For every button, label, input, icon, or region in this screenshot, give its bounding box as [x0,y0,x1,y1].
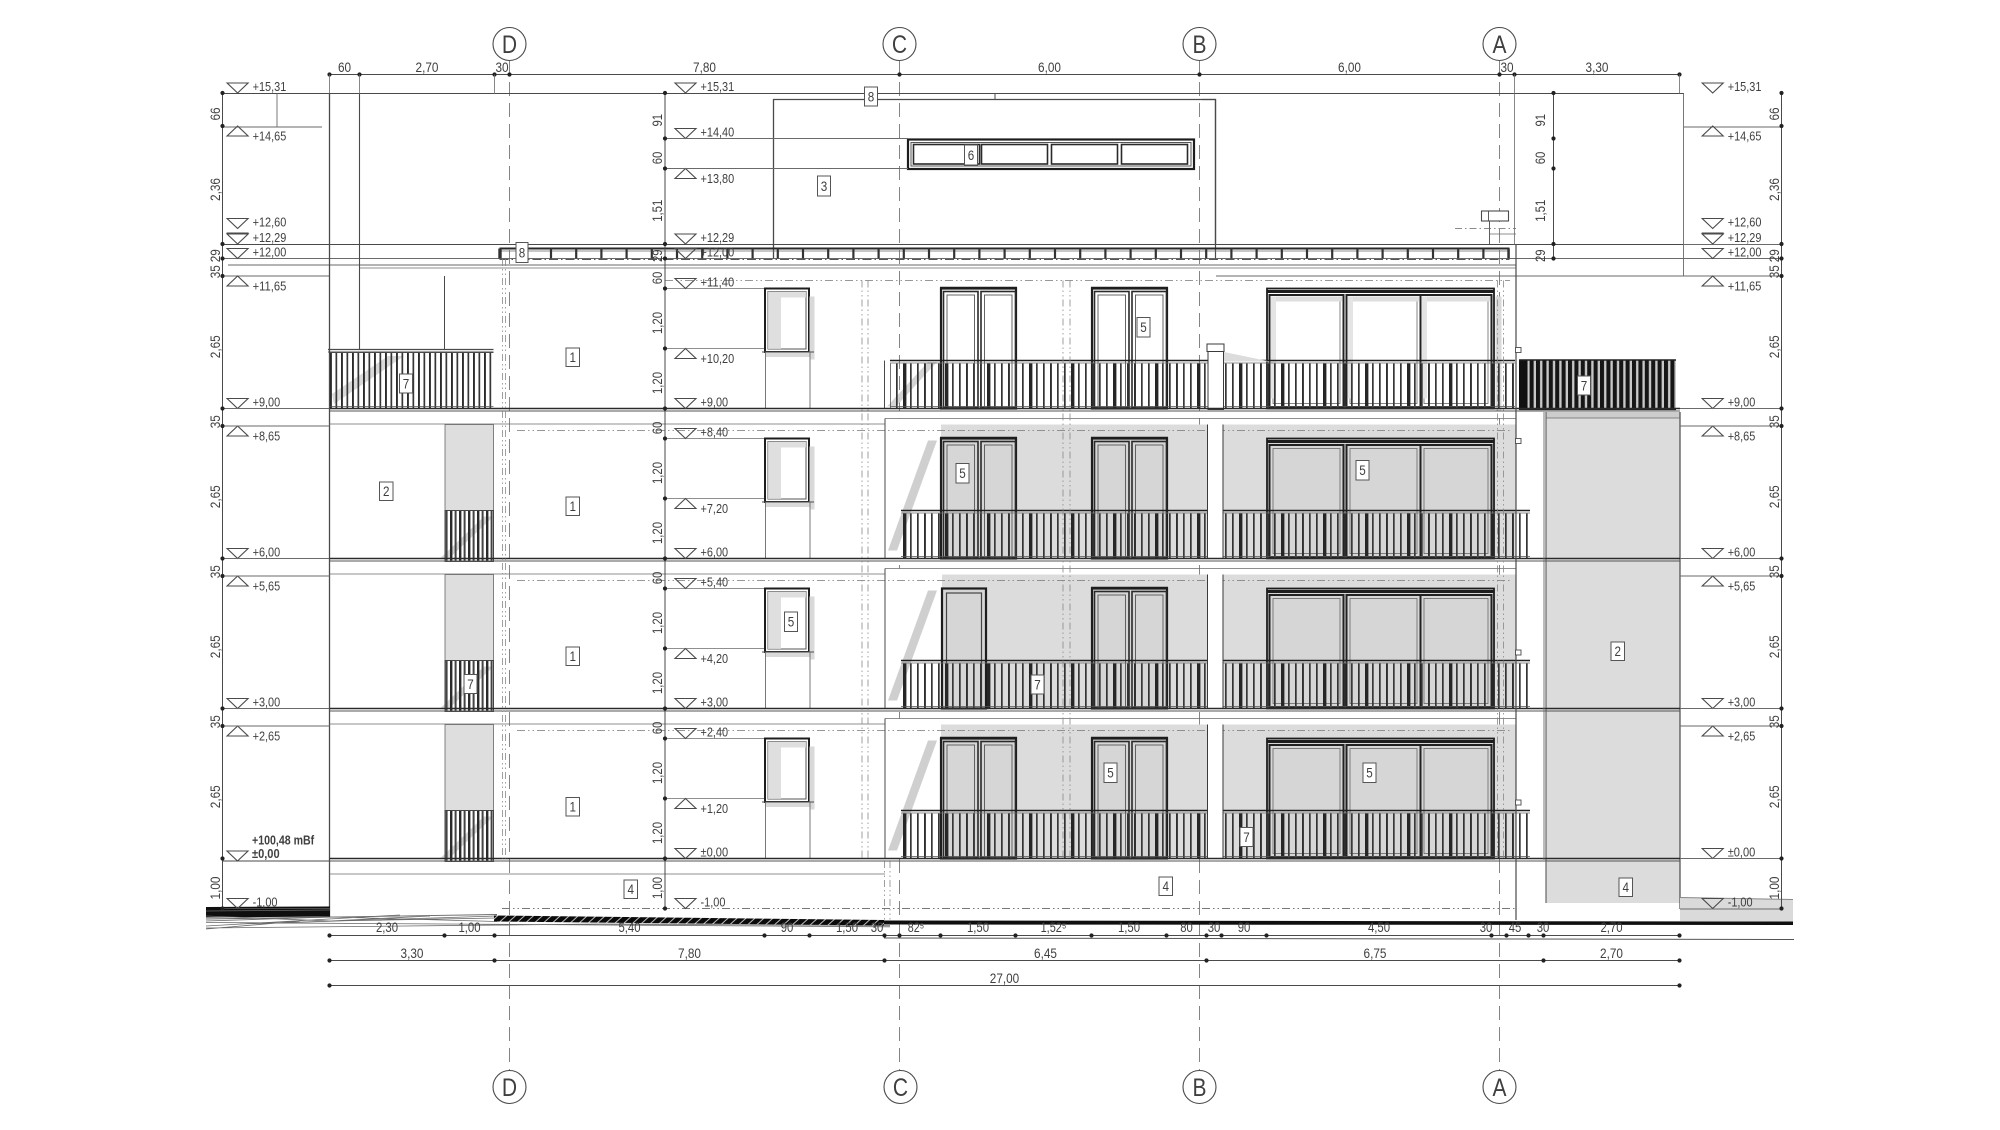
svg-text:3,30: 3,30 [1586,59,1609,75]
svg-text:30: 30 [1537,920,1550,935]
svg-text:2,36: 2,36 [207,178,223,201]
svg-text:5: 5 [1359,462,1366,478]
svg-text:2,65: 2,65 [207,335,223,358]
svg-text:+4,20: +4,20 [701,651,729,666]
svg-text:+7,20: +7,20 [701,501,729,516]
svg-text:60: 60 [650,272,665,285]
svg-text:1,20: 1,20 [650,372,665,394]
svg-text:29: 29 [650,249,665,262]
svg-text:5: 5 [1107,765,1114,781]
svg-text:3: 3 [821,178,828,194]
svg-text:1,50: 1,50 [967,920,989,935]
svg-text:1: 1 [570,648,577,664]
svg-text:7: 7 [467,676,474,692]
svg-text:6,00: 6,00 [1338,59,1361,75]
svg-text:+15,31: +15,31 [701,79,735,94]
svg-text:+1,20: +1,20 [701,801,729,816]
svg-text:5: 5 [788,614,795,630]
svg-text:+14,40: +14,40 [701,125,735,140]
svg-text:1,20: 1,20 [650,822,665,844]
svg-text:±0,00: ±0,00 [1728,845,1756,860]
svg-text:4: 4 [628,881,635,897]
svg-text:1,00: 1,00 [458,920,480,935]
svg-text:+11,65: +11,65 [253,279,287,294]
svg-text:60: 60 [338,59,351,75]
svg-text:+5,40: +5,40 [701,575,729,590]
svg-text:1,50: 1,50 [836,920,858,935]
svg-text:1,00: 1,00 [207,876,223,899]
svg-text:1,20: 1,20 [650,522,665,544]
svg-text:35: 35 [1766,565,1782,578]
svg-text:45: 45 [1509,920,1522,935]
svg-text:+11,40: +11,40 [701,275,735,290]
svg-text:+8,40: +8,40 [701,425,729,440]
svg-text:3,30: 3,30 [401,945,424,961]
svg-text:2: 2 [383,483,390,499]
svg-text:1,52⁵: 1,52⁵ [1041,920,1067,935]
svg-text:B: B [1193,31,1207,59]
svg-text:6,75: 6,75 [1364,945,1387,961]
svg-text:+3,00: +3,00 [701,695,729,710]
svg-text:2,36: 2,36 [1766,178,1782,201]
svg-text:7: 7 [1243,829,1250,845]
svg-text:8: 8 [519,244,526,260]
svg-text:+12,00: +12,00 [701,245,735,260]
svg-text:A: A [1493,1074,1507,1102]
svg-text:+6,00: +6,00 [253,545,281,560]
svg-text:35: 35 [207,715,223,728]
svg-text:35: 35 [207,265,223,278]
svg-text:30: 30 [1480,920,1493,935]
svg-text:+10,20: +10,20 [701,351,735,366]
svg-text:2,70: 2,70 [1600,920,1622,935]
svg-text:+12,60: +12,60 [1728,215,1762,230]
svg-text:35: 35 [207,565,223,578]
svg-text:1,51: 1,51 [1533,200,1548,222]
svg-text:7: 7 [1581,377,1588,393]
svg-text:4: 4 [1163,878,1170,894]
svg-text:35: 35 [1766,415,1782,428]
svg-text:1: 1 [570,498,577,514]
svg-text:A: A [1493,31,1507,59]
svg-text:D: D [502,31,517,59]
svg-text:5: 5 [1366,765,1373,781]
svg-text:+9,00: +9,00 [701,395,729,410]
svg-text:7: 7 [1034,676,1041,692]
svg-text:80: 80 [1180,920,1193,935]
svg-text:4,50: 4,50 [1368,920,1390,935]
svg-text:+6,00: +6,00 [701,545,729,560]
svg-text:35: 35 [1766,715,1782,728]
svg-text:6,00: 6,00 [1038,59,1061,75]
svg-text:C: C [892,31,907,59]
svg-text:1,51: 1,51 [650,200,665,222]
svg-text:2,65: 2,65 [207,635,223,658]
svg-text:6: 6 [968,147,975,163]
svg-text:+12,00: +12,00 [253,245,287,260]
svg-text:1,20: 1,20 [650,612,665,634]
svg-text:7,80: 7,80 [678,945,701,961]
svg-text:60: 60 [650,572,665,585]
svg-text:30: 30 [871,920,884,935]
svg-text:2,70: 2,70 [1600,945,1623,961]
svg-text:7: 7 [403,375,410,391]
svg-text:+12,29: +12,29 [701,230,735,245]
svg-text:1,00: 1,00 [1766,876,1782,899]
svg-text:+9,00: +9,00 [1728,395,1756,410]
svg-text:+5,65: +5,65 [1728,579,1756,594]
svg-text:2: 2 [1615,643,1622,659]
svg-text:90: 90 [781,920,794,935]
svg-text:-1,00: -1,00 [1728,895,1753,910]
svg-text:+12,60: +12,60 [253,215,287,230]
svg-text:91: 91 [1533,114,1548,127]
svg-text:30: 30 [1208,920,1221,935]
svg-text:60: 60 [650,722,665,735]
svg-text:+2,65: +2,65 [253,729,281,744]
svg-text:29: 29 [1533,249,1548,262]
svg-text:5: 5 [1140,319,1147,335]
svg-text:2,65: 2,65 [207,485,223,508]
svg-text:+9,00: +9,00 [253,395,281,410]
svg-text:1,20: 1,20 [650,312,665,334]
svg-text:+3,00: +3,00 [253,695,281,710]
svg-text:1,20: 1,20 [650,762,665,784]
svg-text:2,30: 2,30 [376,920,398,935]
svg-text:1: 1 [570,799,577,815]
svg-text:2,65: 2,65 [1766,635,1782,658]
svg-text:+8,65: +8,65 [1728,429,1756,444]
svg-text:C: C [893,1074,908,1102]
svg-text:27,00: 27,00 [990,970,1020,986]
svg-text:5: 5 [959,465,966,481]
svg-text:+2,65: +2,65 [1728,729,1756,744]
svg-text:82⁵: 82⁵ [908,920,924,935]
svg-text:+12,29: +12,29 [1728,230,1762,245]
svg-text:29: 29 [1766,249,1782,262]
svg-text:2,65: 2,65 [1766,785,1782,808]
svg-text:+8,65: +8,65 [253,429,281,444]
svg-text:1,20: 1,20 [650,672,665,694]
svg-text:6,45: 6,45 [1034,945,1057,961]
svg-text:+15,31: +15,31 [253,79,287,94]
svg-text:1,50: 1,50 [1118,920,1140,935]
svg-text:35: 35 [1766,265,1782,278]
svg-text:+14,65: +14,65 [1728,129,1762,144]
svg-text:+15,31: +15,31 [1728,79,1762,94]
svg-text:4: 4 [1623,879,1630,895]
svg-text:91: 91 [650,114,665,127]
svg-text:-1,00: -1,00 [701,895,726,910]
svg-text:1,20: 1,20 [650,462,665,484]
svg-text:30: 30 [1500,59,1513,75]
svg-text:2,65: 2,65 [207,785,223,808]
svg-text:+3,00: +3,00 [1728,695,1756,710]
svg-text:±0,00: ±0,00 [701,845,729,860]
svg-text:±0,00: ±0,00 [252,846,280,861]
svg-text:30: 30 [495,59,508,75]
svg-text:+5,65: +5,65 [253,579,281,594]
svg-text:8: 8 [868,88,875,104]
svg-text:-1,00: -1,00 [253,895,278,910]
svg-text:60: 60 [1533,152,1548,165]
svg-text:90: 90 [1238,920,1251,935]
svg-text:60: 60 [650,152,665,165]
svg-text:B: B [1193,1074,1207,1102]
svg-text:29: 29 [207,249,223,262]
svg-text:60: 60 [650,422,665,435]
svg-text:7,80: 7,80 [693,59,716,75]
svg-text:35: 35 [207,415,223,428]
svg-text:2,65: 2,65 [1766,485,1782,508]
svg-text:66: 66 [207,107,223,120]
svg-text:+12,00: +12,00 [1728,245,1762,260]
svg-text:5,40: 5,40 [618,920,640,935]
svg-text:D: D [502,1074,517,1102]
svg-text:+12,29: +12,29 [253,230,287,245]
svg-text:2,65: 2,65 [1766,335,1782,358]
svg-text:1,00: 1,00 [650,877,665,899]
svg-text:+14,65: +14,65 [253,129,287,144]
svg-text:+2,40: +2,40 [701,725,729,740]
svg-text:66: 66 [1766,107,1782,120]
svg-text:2,70: 2,70 [416,59,439,75]
svg-text:1: 1 [570,349,577,365]
svg-text:+11,65: +11,65 [1728,279,1762,294]
svg-text:+6,00: +6,00 [1728,545,1756,560]
svg-text:+13,80: +13,80 [701,171,735,186]
